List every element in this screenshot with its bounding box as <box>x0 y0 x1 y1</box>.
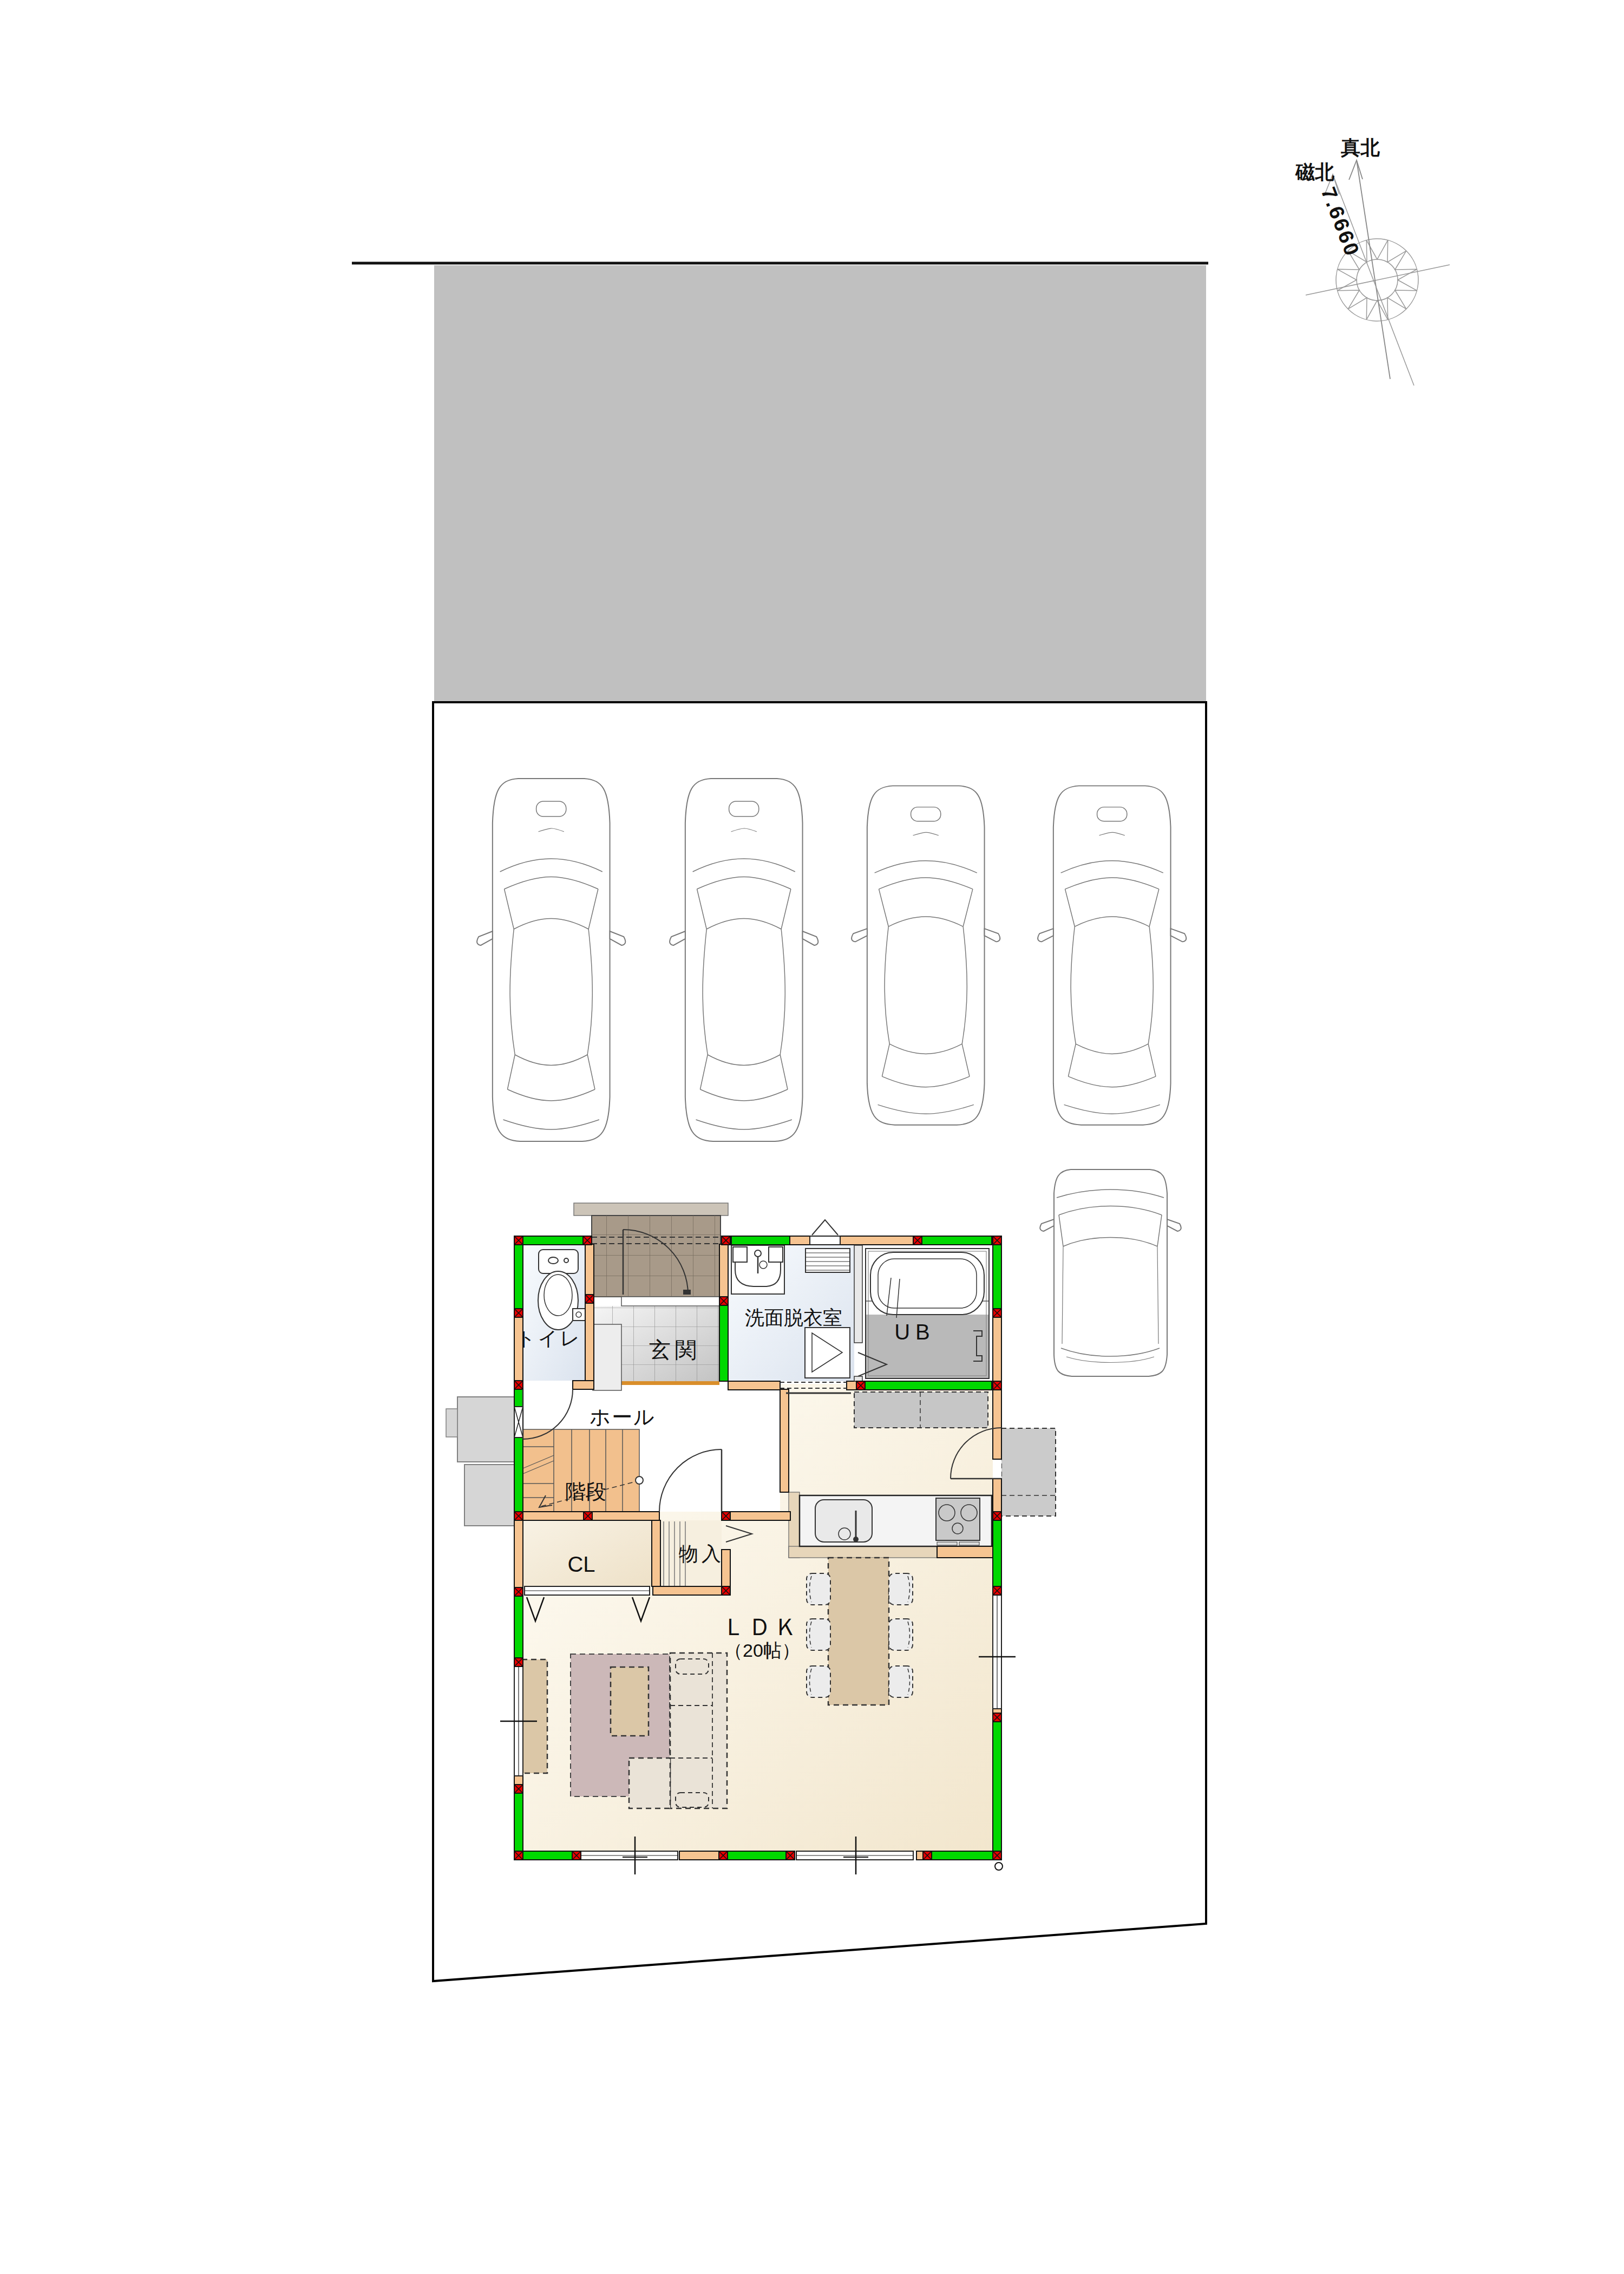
dining-table <box>828 1558 889 1705</box>
stair-column-marker <box>636 1476 643 1484</box>
car-1 <box>477 779 625 1141</box>
kitchen-sink <box>815 1500 872 1542</box>
magnetic-north-label: 磁北 <box>1295 161 1335 183</box>
label-closet: CL <box>567 1552 595 1576</box>
label-ldk-size: （20帖） <box>724 1640 800 1661</box>
car-5-van <box>1040 1169 1181 1376</box>
cooktop <box>936 1498 980 1545</box>
true-north-arrow-icon <box>1349 160 1363 180</box>
washing-machine-space <box>805 1328 850 1378</box>
label-storage: 物入 <box>678 1543 724 1565</box>
dining-chair <box>807 1619 830 1650</box>
car-2 <box>670 779 818 1141</box>
car-3 <box>852 786 1000 1125</box>
dining-chair <box>889 1619 913 1650</box>
corner-column-marker <box>995 1863 1003 1870</box>
dining-chair <box>889 1573 913 1605</box>
label-hall: ホール <box>590 1406 656 1428</box>
entrance-step-strip <box>621 1297 719 1306</box>
porch-upper-step <box>574 1203 728 1216</box>
tv-board <box>522 1659 547 1773</box>
toilet-fixture <box>538 1250 578 1330</box>
car-4 <box>1038 786 1186 1125</box>
coffee-table <box>611 1667 649 1736</box>
towel-shelf <box>806 1249 850 1272</box>
backdoor-landing <box>1001 1428 1056 1516</box>
label-ldk: ＬＤＫ <box>722 1613 800 1640</box>
dining-chair <box>889 1666 913 1697</box>
agarikamachi-strip <box>621 1381 719 1385</box>
ottoman <box>629 1758 670 1808</box>
label-toilet: トイレ <box>516 1327 582 1349</box>
refrigerator-space <box>854 1392 988 1428</box>
vanity-sink <box>731 1245 784 1294</box>
adjacent-lot-block <box>434 265 1206 702</box>
label-entrance: 玄関 <box>649 1338 701 1362</box>
dining-chair <box>807 1573 830 1605</box>
declination-value: 7.6660 <box>1317 184 1364 260</box>
true-north-line <box>1357 160 1390 379</box>
label-bath: UB <box>894 1320 935 1344</box>
plan-drawing: 真北 磁北 7.6660 <box>0 0 1624 2274</box>
compass-rose: 真北 磁北 7.6660 <box>1295 136 1450 385</box>
site-floorplan-canvas: { "compass": { "true_north": "真北", "magn… <box>0 0 1624 2274</box>
true-north-label: 真北 <box>1340 136 1380 159</box>
label-washroom: 洗面脱衣室 <box>745 1306 842 1329</box>
dining-chair <box>807 1666 830 1697</box>
label-stairs: 階段 <box>565 1480 606 1503</box>
toilet-hand-basin <box>573 1309 585 1321</box>
window-left-slit <box>514 1407 523 1437</box>
shoe-cabinet <box>593 1324 621 1390</box>
